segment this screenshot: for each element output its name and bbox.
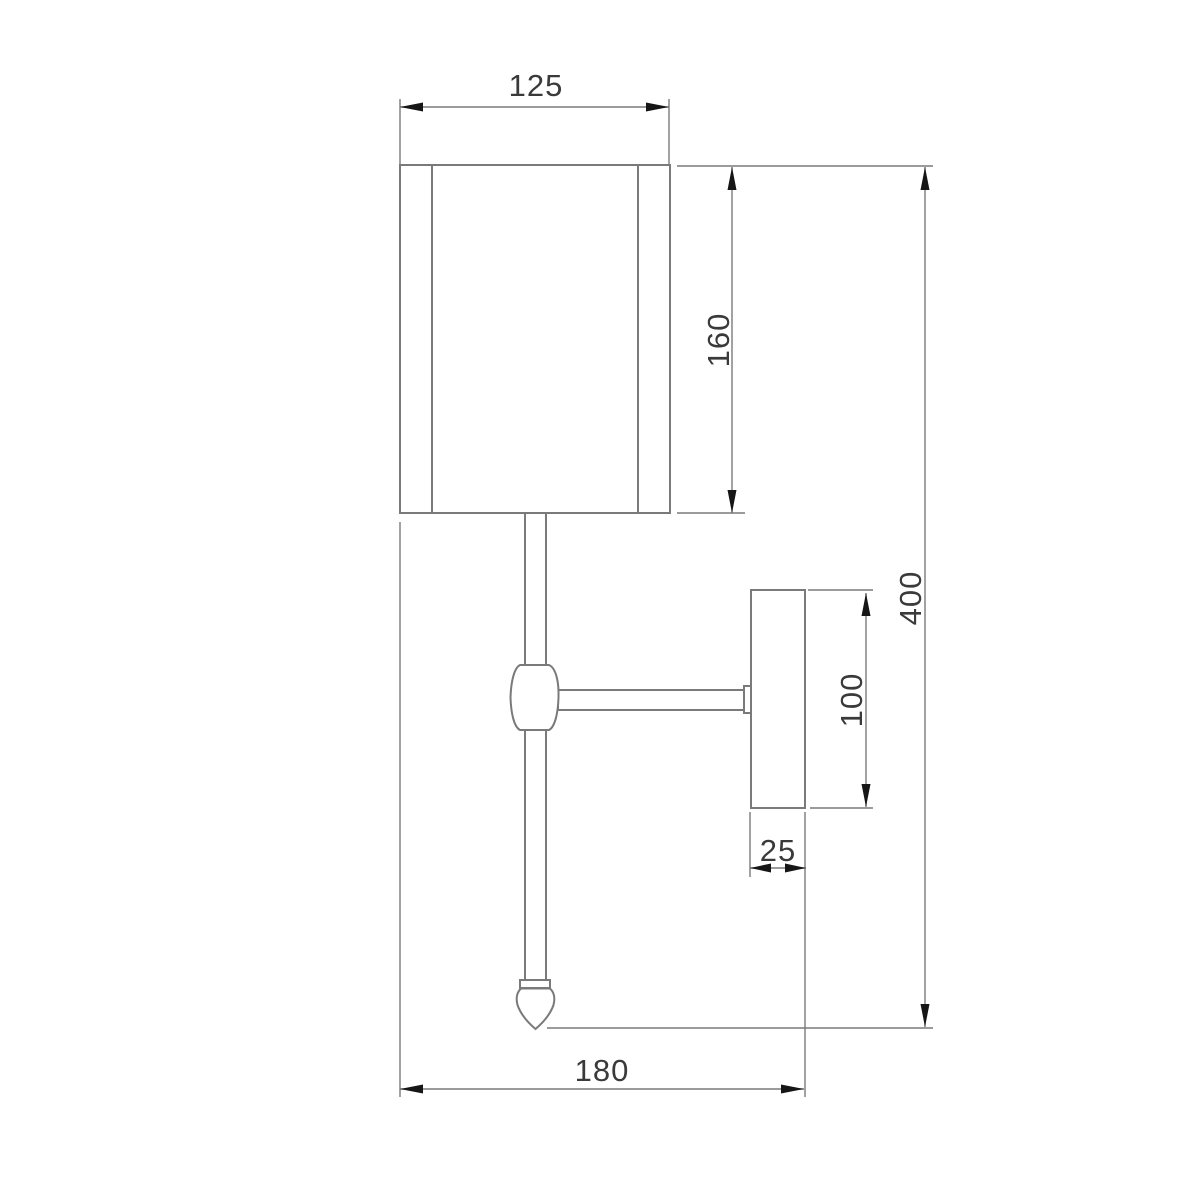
label-shade-width: 125 <box>509 68 564 103</box>
finial-collar <box>520 980 550 988</box>
sconce-outline <box>400 165 805 1029</box>
arrow-overall-depth-right <box>781 1085 804 1094</box>
arrow-shade-height-bottom <box>728 490 737 513</box>
arrow-total-height-top <box>921 167 930 190</box>
label-total-height: 400 <box>893 571 928 626</box>
drawing-canvas: 125 160 400 100 25 180 <box>0 0 1200 1200</box>
label-shade-height: 160 <box>701 313 736 368</box>
wall-backplate <box>751 590 805 808</box>
mounting-arm <box>558 690 744 710</box>
arrow-shade-width-right <box>646 103 669 112</box>
label-backplate-height: 100 <box>834 673 869 728</box>
sconce-dimension-drawing: 125 160 400 100 25 180 <box>0 0 1200 1200</box>
arrow-shade-width-left <box>400 103 423 112</box>
arrow-shade-height-top <box>728 167 737 190</box>
finial-teardrop <box>517 989 555 1030</box>
stem-knob <box>511 665 559 730</box>
arrow-overall-depth-left <box>400 1085 423 1094</box>
label-backplate-depth: 25 <box>760 833 796 868</box>
label-overall-depth: 180 <box>575 1053 630 1088</box>
arrow-total-height-bottom <box>921 1004 930 1027</box>
arrow-plate-height-bottom <box>862 784 871 807</box>
arm-bracket <box>744 686 751 713</box>
arrow-plate-height-top <box>862 593 871 616</box>
lampshade <box>400 165 670 513</box>
